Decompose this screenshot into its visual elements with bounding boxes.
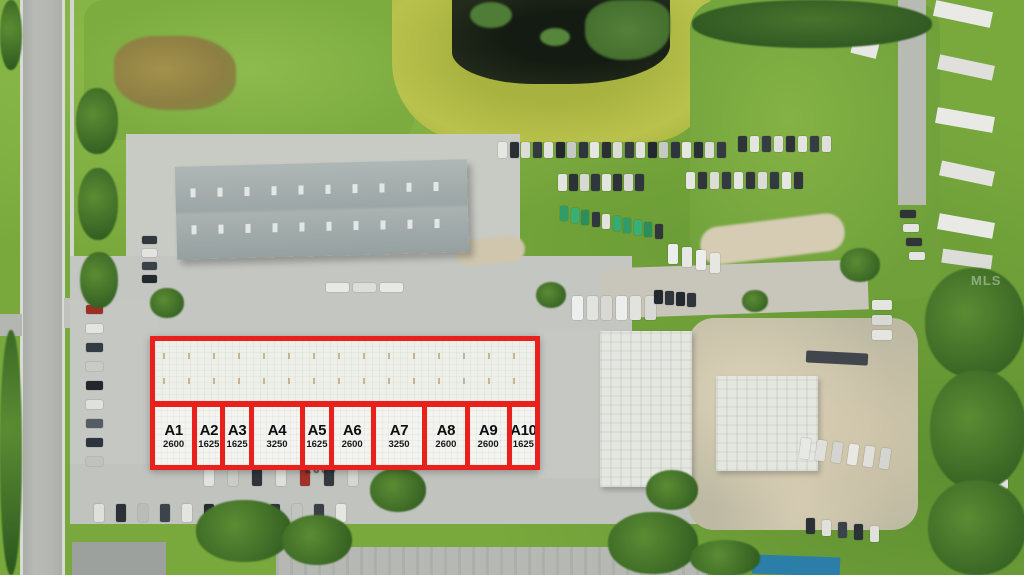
- parked-car: [204, 469, 214, 486]
- yard-green-vehicle: [602, 214, 610, 229]
- east-van: [872, 330, 892, 340]
- yard-vehicle: [734, 172, 743, 189]
- yard-vehicle: [602, 142, 611, 158]
- parked-car: [160, 504, 170, 522]
- parked-car: [665, 291, 674, 305]
- parked-car: [854, 524, 863, 540]
- yard-vehicle: [544, 142, 553, 158]
- yard-vehicle: [521, 142, 530, 158]
- yard-vehicle: [498, 142, 507, 158]
- tree: [840, 248, 880, 282]
- yard-vehicle: [694, 142, 703, 158]
- tree: [536, 282, 566, 308]
- yard-vehicle: [722, 172, 731, 189]
- unit-sqft: 3250: [388, 440, 409, 450]
- yard-green-vehicle: [560, 206, 568, 221]
- mobile-home: [941, 249, 992, 270]
- hedge: [0, 330, 22, 575]
- sidewalk: [70, 0, 74, 298]
- parked-car: [116, 504, 126, 522]
- parked-car: [687, 293, 696, 307]
- parked-car: [676, 292, 685, 306]
- mls-watermark: MLS: [971, 273, 1001, 288]
- yard-green-vehicle: [581, 210, 589, 225]
- yard-vehicle: [698, 172, 707, 189]
- trailer: [353, 283, 376, 292]
- yard-vehicle: [738, 136, 747, 152]
- yard-vehicle: [746, 172, 755, 189]
- unit-label: A9: [479, 423, 498, 438]
- parked-car: [348, 469, 358, 486]
- unit-cell-a5: A51625: [305, 407, 328, 465]
- unit-label: A5: [308, 423, 327, 438]
- parked-car: [138, 504, 148, 522]
- yard-vehicle: [580, 174, 589, 191]
- unit-cell-a1: A12600: [155, 407, 192, 465]
- unit-sqft: 1625: [513, 440, 534, 450]
- mobile-home: [937, 213, 995, 238]
- unit-label: A6: [343, 423, 362, 438]
- yard-vehicle: [579, 142, 588, 158]
- yard-vehicle: [558, 174, 567, 191]
- yard-vehicle: [794, 172, 803, 189]
- unit-sqft: 3250: [266, 440, 287, 450]
- parked-car: [86, 324, 103, 333]
- tree-band-top: [692, 0, 932, 48]
- unit-sqft: 1625: [227, 440, 248, 450]
- hedge: [80, 252, 118, 308]
- yard-vehicle: [624, 174, 633, 191]
- tree: [646, 470, 698, 510]
- lane-vehicle: [900, 210, 916, 218]
- hedge: [76, 88, 118, 154]
- street-left: [22, 0, 64, 575]
- parked-car: [838, 522, 847, 538]
- unit-cell-a8: A82600: [427, 407, 464, 465]
- yard-vehicle: [533, 142, 542, 158]
- yard-vehicle: [648, 142, 657, 158]
- aerial-photo: A12600A21625A31625A43250A51625A62600A732…: [0, 0, 1024, 575]
- parked-car: [142, 262, 157, 270]
- unit-label: A4: [268, 423, 287, 438]
- parked-car: [86, 457, 103, 466]
- pond-algae: [540, 28, 570, 46]
- yard-green-vehicle: [623, 218, 631, 233]
- unit-sqft: 2600: [435, 440, 456, 450]
- tree: [150, 288, 184, 318]
- unit-sqft: 2600: [478, 440, 499, 450]
- yard-vehicle: [636, 142, 645, 158]
- mobile-home: [939, 161, 995, 187]
- yard-vehicle: [602, 174, 611, 191]
- yard-green-vehicle: [592, 212, 600, 227]
- unit-label: A7: [390, 423, 409, 438]
- yard-vehicle: [822, 136, 831, 152]
- yard-vehicle: [786, 136, 795, 152]
- yard-vehicle: [671, 142, 680, 158]
- east-van: [872, 300, 892, 310]
- yard-vehicle: [686, 172, 695, 189]
- yard-vehicle: [710, 172, 719, 189]
- yard-vehicle: [717, 142, 726, 158]
- mobile-home: [933, 0, 993, 28]
- unit-sqft: 2600: [342, 440, 363, 450]
- yard-green-vehicle: [634, 220, 642, 235]
- yard-vehicle: [635, 174, 644, 191]
- parked-car: [276, 469, 286, 486]
- yard-vehicle: [682, 142, 691, 158]
- unit-sqft: 1625: [306, 440, 327, 450]
- yard-van: [696, 250, 706, 270]
- yard-van: [710, 253, 720, 273]
- trailer: [326, 283, 349, 292]
- yard-vehicle: [750, 136, 759, 152]
- unit-label: A2: [200, 423, 219, 438]
- yard-green-vehicle: [644, 222, 652, 237]
- tree: [690, 540, 760, 575]
- parked-car: [94, 504, 104, 522]
- tree: [370, 468, 426, 512]
- parked-car: [142, 249, 157, 257]
- yard-vehicle: [613, 142, 622, 158]
- unit-label: A1: [164, 423, 183, 438]
- parked-car: [86, 381, 103, 390]
- yard-vehicle: [510, 142, 519, 158]
- blue-truck: [752, 554, 841, 575]
- unit-label: A10: [512, 423, 535, 438]
- tree: [282, 515, 352, 565]
- parked-car: [142, 236, 157, 244]
- tree: [196, 500, 292, 562]
- parked-car: [654, 290, 663, 304]
- lane-vehicle: [906, 238, 922, 246]
- parked-car: [86, 343, 103, 352]
- unit-plan-overlay: A12600A21625A31625A43250A51625A62600A732…: [150, 336, 540, 470]
- trailer: [380, 283, 403, 292]
- unit-cell-a9: A92600: [470, 407, 507, 465]
- parked-car: [806, 518, 815, 534]
- parked-car: [252, 469, 262, 486]
- north-warehouse: [175, 159, 469, 260]
- yard-vehicle: [613, 174, 622, 191]
- unit-cell-a3: A31625: [225, 407, 248, 465]
- unit-cell-a4: A43250: [254, 407, 301, 465]
- dry-brush-patch: [114, 36, 236, 110]
- yard-vehicle: [590, 142, 599, 158]
- lane-vehicle: [903, 224, 919, 232]
- trailer: [601, 296, 612, 320]
- yard-vehicle: [567, 142, 576, 158]
- mobile-home: [937, 54, 995, 80]
- yard-vehicle: [762, 136, 771, 152]
- parked-car: [228, 469, 238, 486]
- yard-green-vehicle: [655, 224, 663, 239]
- yard-vehicle: [758, 172, 767, 189]
- unit-row: A12600A21625A31625A43250A51625A62600A732…: [155, 401, 535, 465]
- unit-cell-a10: A101625: [512, 407, 535, 465]
- yard-van: [682, 247, 692, 267]
- unit-cell-a2: A21625: [197, 407, 220, 465]
- yard-vehicle: [625, 142, 634, 158]
- yard-vehicle: [705, 142, 714, 158]
- mobile-home: [935, 107, 995, 133]
- pavement-mid-east: [538, 330, 608, 478]
- trailer: [616, 296, 627, 320]
- pond-algae: [470, 2, 512, 28]
- east-van: [872, 315, 892, 325]
- unit-cell-a6: A62600: [334, 407, 371, 465]
- unit-sqft: 2600: [163, 440, 184, 450]
- trailer: [572, 296, 583, 320]
- yard-vehicle: [810, 136, 819, 152]
- lane-vehicle: [909, 252, 925, 260]
- parked-car: [86, 362, 103, 371]
- south-building-left: [72, 542, 166, 575]
- street-edge: [62, 0, 65, 575]
- yard-vehicle: [659, 142, 668, 158]
- yard-green-vehicle: [571, 208, 579, 223]
- parked-car: [182, 504, 192, 522]
- pond-algae: [585, 0, 670, 60]
- tree: [608, 512, 698, 574]
- unit-cell-a7: A73250: [376, 407, 423, 465]
- parked-car: [870, 526, 879, 542]
- yard-vehicle: [770, 172, 779, 189]
- parked-car: [86, 438, 103, 447]
- yard-vehicle: [782, 172, 791, 189]
- subject-building-roof: [155, 341, 535, 401]
- parked-car: [86, 400, 103, 409]
- parked-car: [86, 419, 103, 428]
- yard-vehicle: [556, 142, 565, 158]
- trailer: [587, 296, 598, 320]
- yard-vehicle: [798, 136, 807, 152]
- unit-label: A3: [228, 423, 247, 438]
- tree: [928, 480, 1024, 575]
- yard-vehicle: [774, 136, 783, 152]
- trailer: [630, 296, 641, 320]
- unit-sqft: 1625: [198, 440, 219, 450]
- east-building-long: [600, 331, 692, 487]
- hedge: [78, 168, 118, 240]
- parked-car: [142, 275, 157, 283]
- tree: [742, 290, 768, 312]
- yard-vehicle: [591, 174, 600, 191]
- parked-car: [822, 520, 831, 536]
- yard-van: [668, 244, 678, 264]
- yard-green-vehicle: [613, 216, 621, 231]
- hedge: [0, 0, 22, 70]
- yard-vehicle: [569, 174, 578, 191]
- tree: [930, 370, 1024, 490]
- unit-label: A8: [437, 423, 456, 438]
